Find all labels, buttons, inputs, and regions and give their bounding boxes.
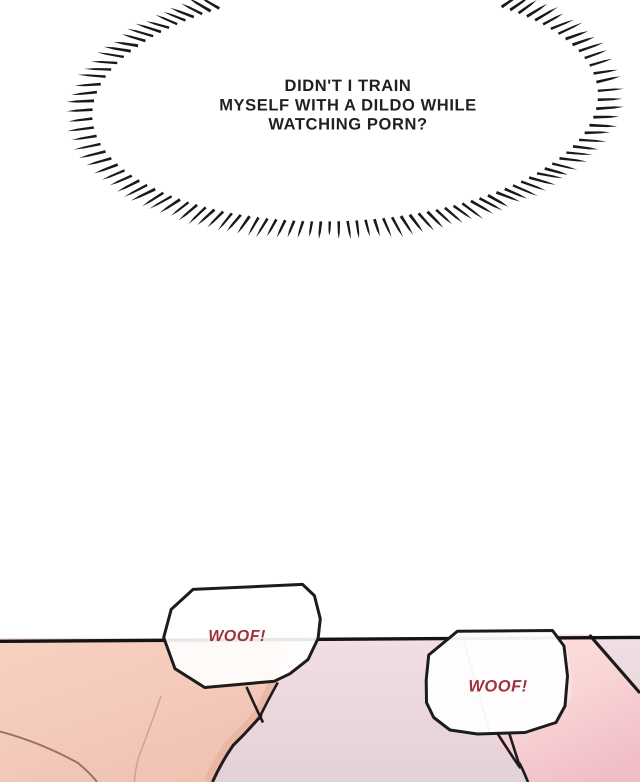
svg-text:DIDN'T I TRAIN: DIDN'T I TRAIN (285, 77, 412, 95)
svg-text:WOOF!: WOOF! (468, 677, 527, 695)
svg-text:MYSELF WITH A DILDO WHILE: MYSELF WITH A DILDO WHILE (219, 96, 477, 114)
svg-text:WOOF!: WOOF! (208, 628, 266, 645)
svg-text:WATCHING PORN?: WATCHING PORN? (268, 115, 427, 133)
